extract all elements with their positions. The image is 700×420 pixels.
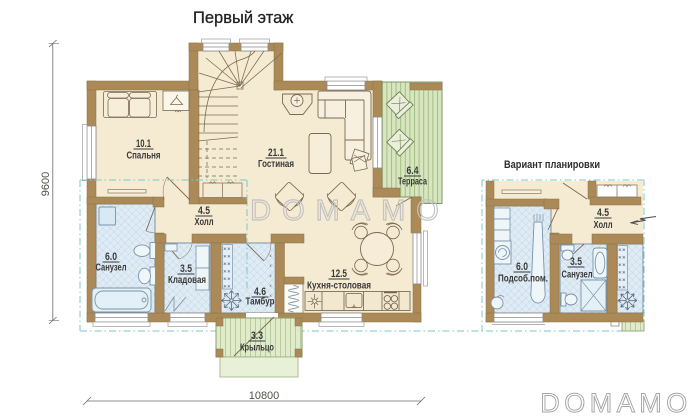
svg-text:Холл: Холл: [594, 220, 613, 231]
svg-text:21.1: 21.1: [268, 147, 284, 159]
svg-text:Крыльцо: Крыльцо: [240, 343, 274, 354]
svg-text:6.0: 6.0: [516, 261, 528, 273]
svg-text:Кладовая: Кладовая: [168, 275, 206, 286]
svg-text:6.0: 6.0: [105, 251, 117, 263]
svg-text:6.4: 6.4: [407, 165, 420, 177]
svg-text:4.5: 4.5: [198, 205, 210, 217]
svg-text:Терраса: Терраса: [398, 177, 427, 188]
svg-text:12.5: 12.5: [331, 268, 347, 280]
svg-text:ж ж: ж ж: [619, 270, 626, 275]
svg-text:ж ж: ж ж: [224, 269, 231, 274]
svg-text:ж ж: ж ж: [619, 247, 626, 252]
svg-text:Спальня: Спальня: [127, 151, 161, 162]
svg-text:3.3: 3.3: [251, 330, 263, 342]
svg-text:DOMAMO: DOMAMO: [250, 195, 450, 227]
svg-text:Тамбур: Тамбур: [246, 296, 275, 308]
svg-text:10.1: 10.1: [136, 138, 151, 150]
svg-text:10800: 10800: [249, 390, 280, 402]
svg-text:ж ж: ж ж: [224, 261, 231, 266]
svg-text:Подсоб.пом.: Подсоб.пом.: [498, 273, 548, 285]
svg-text:Первый этаж: Первый этаж: [193, 9, 293, 27]
svg-text:ж ж: ж ж: [224, 276, 231, 281]
svg-text:ж ж: ж ж: [224, 246, 231, 251]
svg-text:4.5: 4.5: [597, 207, 609, 219]
svg-text:ж ж: ж ж: [619, 262, 626, 267]
svg-text:Кухня-столовая: Кухня-столовая: [307, 281, 371, 292]
svg-text:3.5: 3.5: [180, 263, 192, 275]
svg-text:ж ж: ж ж: [619, 277, 626, 282]
svg-text:ж ж: ж ж: [619, 255, 626, 260]
svg-text:Вариант планировки: Вариант планировки: [504, 159, 600, 171]
svg-text:Холл: Холл: [195, 217, 214, 228]
svg-text:Санузел: Санузел: [96, 263, 127, 274]
svg-text:Санузел: Санузел: [562, 270, 593, 281]
svg-text:Гостиная: Гостиная: [258, 159, 294, 170]
svg-text:3.5: 3.5: [570, 256, 582, 268]
svg-text:ж ж: ж ж: [619, 285, 626, 290]
svg-text:DOMAMO: DOMAMO: [540, 388, 692, 418]
svg-text:9600: 9600: [40, 172, 52, 196]
svg-text:ж ж: ж ж: [224, 284, 231, 289]
svg-text:ж ж: ж ж: [224, 254, 231, 259]
